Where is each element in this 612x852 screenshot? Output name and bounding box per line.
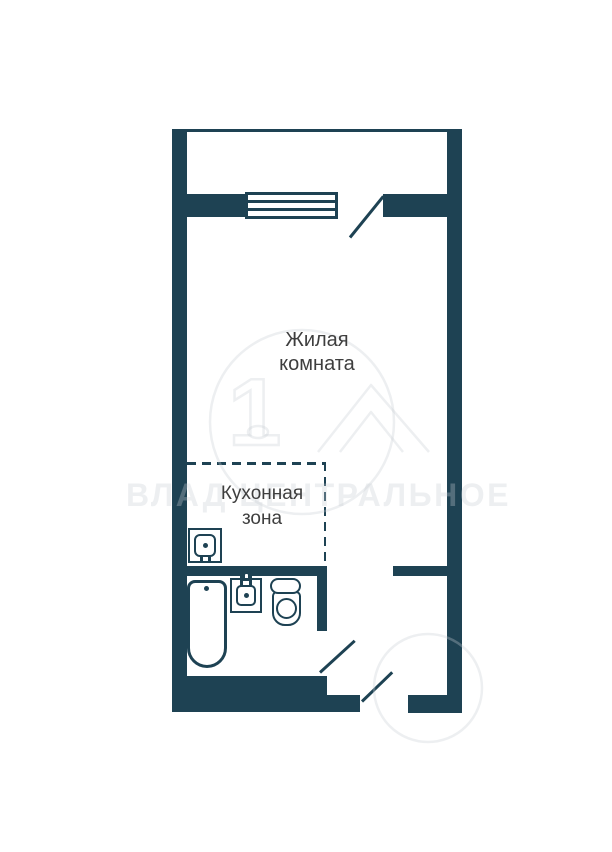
living-room-label: Жилая комната: [232, 328, 402, 376]
living-room-label-line2: комната: [232, 352, 402, 376]
living-room-label-line1: Жилая: [232, 328, 402, 352]
watermark-logo: 1: [0, 0, 612, 852]
kitchen-zone-label: Кухонная зона: [192, 481, 332, 531]
kitchen-zone-label-line1: Кухонная: [192, 481, 332, 506]
kitchen-zone-label-line2: зона: [192, 506, 332, 531]
floor-plan: 1 ВЛАД ЦЕНТРАЛЬНОЕ: [0, 0, 612, 852]
